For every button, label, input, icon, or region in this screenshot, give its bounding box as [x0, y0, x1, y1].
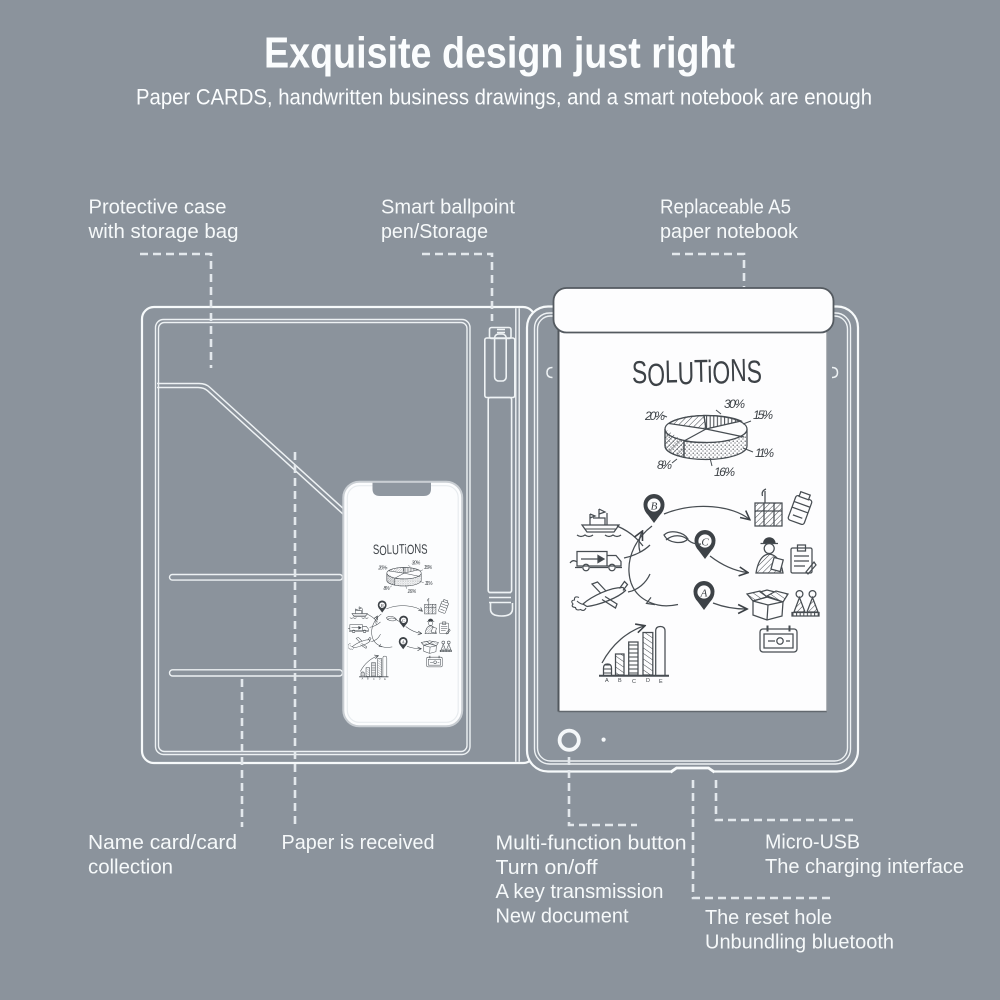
svg-text:Exquisite design just right: Exquisite design just right	[264, 30, 735, 78]
svg-text:The reset hole: The reset hole	[705, 907, 832, 929]
svg-text:pen/Storage: pen/Storage	[381, 221, 488, 243]
svg-text:Smart ballpoint: Smart ballpoint	[381, 197, 515, 219]
svg-text:paper notebook: paper notebook	[660, 221, 799, 243]
svg-text:Micro-USB: Micro-USB	[765, 832, 860, 854]
svg-text:Paper is received: Paper is received	[282, 832, 435, 854]
svg-text:Multi-function button: Multi-function button	[496, 833, 687, 855]
svg-text:Turn on/off: Turn on/off	[496, 857, 598, 879]
svg-text:with storage bag: with storage bag	[87, 221, 238, 243]
svg-text:New document: New document	[496, 906, 629, 928]
svg-text:Unbundling bluetooth: Unbundling bluetooth	[705, 931, 894, 953]
svg-text:Replaceable A5: Replaceable A5	[660, 197, 791, 219]
svg-text:A key transmission: A key transmission	[496, 881, 664, 903]
svg-text:Name card/card: Name card/card	[88, 832, 237, 854]
svg-text:Paper CARDS, handwritten busin: Paper CARDS, handwritten business drawin…	[136, 85, 872, 110]
svg-text:The charging interface: The charging interface	[765, 856, 964, 878]
svg-text:collection: collection	[88, 857, 173, 879]
svg-text:Protective case: Protective case	[89, 197, 227, 219]
